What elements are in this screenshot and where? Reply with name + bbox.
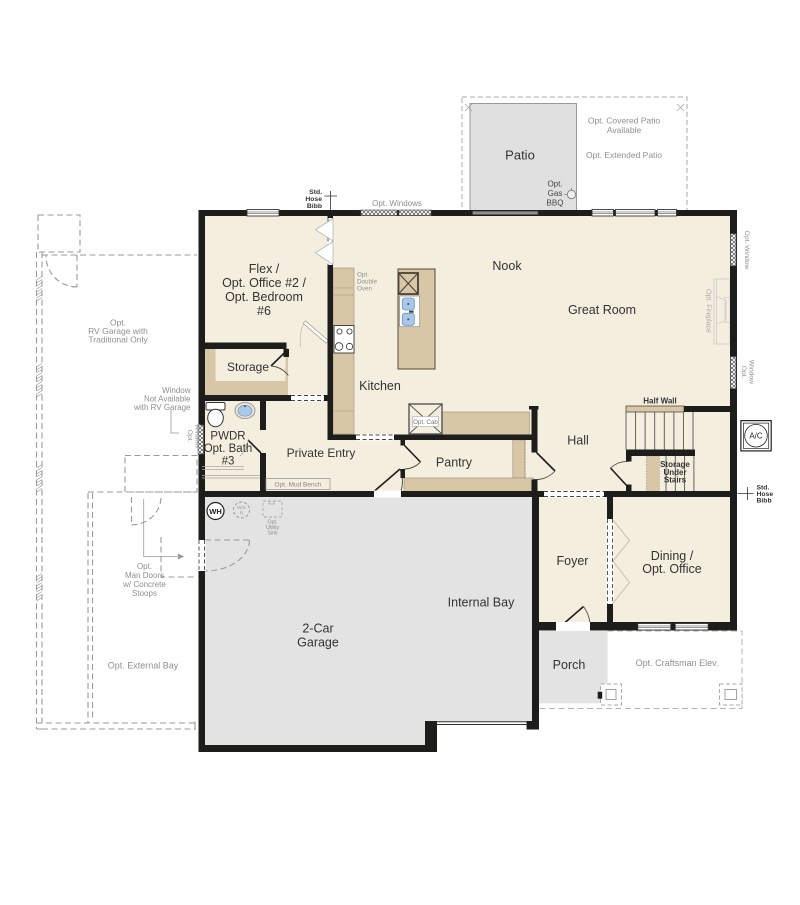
svg-text:Opt.: Opt. <box>186 430 193 443</box>
svg-text:Available: Available <box>607 125 642 135</box>
svg-text:Dining /: Dining / <box>651 549 694 563</box>
svg-text:Opt. Extended Patio: Opt. Extended Patio <box>586 150 662 160</box>
svg-text:BBQ: BBQ <box>547 199 564 208</box>
svg-text:Opt. Bath: Opt. Bath <box>204 443 253 455</box>
svg-text:Porch: Porch <box>553 658 586 672</box>
svg-text:Window: Window <box>194 424 201 448</box>
svg-text:Opt.: Opt. <box>740 366 747 379</box>
svg-text:#3: #3 <box>222 456 235 468</box>
svg-text:w/ Concrete: w/ Concrete <box>122 580 166 589</box>
svg-text:Opt. External Bay: Opt. External Bay <box>108 661 179 671</box>
svg-text:Opt. Mud Bench: Opt. Mud Bench <box>275 482 322 489</box>
svg-text:Patio: Patio <box>505 148 535 163</box>
svg-text:Double: Double <box>357 279 377 286</box>
svg-text:with RV Garage: with RV Garage <box>133 403 191 412</box>
svg-text:Opt. Craftsman Elev.: Opt. Craftsman Elev. <box>636 658 719 668</box>
svg-text:Man Doors: Man Doors <box>125 571 164 580</box>
svg-text:Opt. Office #2 /: Opt. Office #2 / <box>222 276 306 290</box>
svg-text:Oven: Oven <box>357 286 373 293</box>
svg-text:Opt. Windows: Opt. Windows <box>372 199 422 208</box>
svg-text:Opt. Fireplace: Opt. Fireplace <box>705 289 712 333</box>
svg-text:Opt.: Opt. <box>547 180 562 189</box>
svg-text:Window: Window <box>748 360 755 384</box>
svg-text:A/C: A/C <box>749 432 763 441</box>
svg-text:Garage: Garage <box>297 636 339 650</box>
svg-text:Opt.: Opt. <box>357 272 369 279</box>
svg-text:Nook: Nook <box>492 259 522 273</box>
svg-text:Opt.: Opt. <box>137 562 152 571</box>
svg-text:Opt. Bedroom: Opt. Bedroom <box>225 290 303 304</box>
svg-text:Foyer: Foyer <box>557 554 589 568</box>
svg-text:2-Car: 2-Car <box>302 622 333 636</box>
svg-text:Great Room: Great Room <box>568 303 636 317</box>
svg-text:Storage: Storage <box>227 360 269 374</box>
svg-text:Gas: Gas <box>548 189 563 198</box>
svg-text:Opt. Window: Opt. Window <box>743 231 750 270</box>
svg-text:Hose: Hose <box>305 196 322 203</box>
svg-text:Internal Bay: Internal Bay <box>448 596 515 610</box>
svg-text:Sink: Sink <box>267 531 278 537</box>
svg-text:WH: WH <box>209 507 222 516</box>
svg-text:Opt. Office: Opt. Office <box>642 562 702 576</box>
svg-text:#6: #6 <box>257 304 271 318</box>
svg-text:Opt. Cab: Opt. Cab <box>413 419 438 426</box>
svg-text:Private Entry: Private Entry <box>287 446 356 460</box>
svg-text:Pantry: Pantry <box>436 456 473 470</box>
svg-text:W/S: W/S <box>237 505 246 510</box>
svg-text:Opt. Covered Patio: Opt. Covered Patio <box>588 116 661 126</box>
svg-text:PWDR: PWDR <box>210 431 245 443</box>
svg-text:Kitchen: Kitchen <box>359 379 401 393</box>
svg-text:Bibb: Bibb <box>757 498 772 505</box>
svg-text:Stoops: Stoops <box>132 589 157 598</box>
svg-text:Bibb: Bibb <box>307 203 322 210</box>
svg-text:Half Wall: Half Wall <box>643 397 676 406</box>
svg-text:Flex /: Flex / <box>249 262 280 276</box>
svg-text:Traditional Only: Traditional Only <box>88 335 148 345</box>
svg-text:Hall: Hall <box>567 434 589 448</box>
svg-text:Std.: Std. <box>309 189 322 196</box>
svg-text:Stairs: Stairs <box>664 476 687 485</box>
